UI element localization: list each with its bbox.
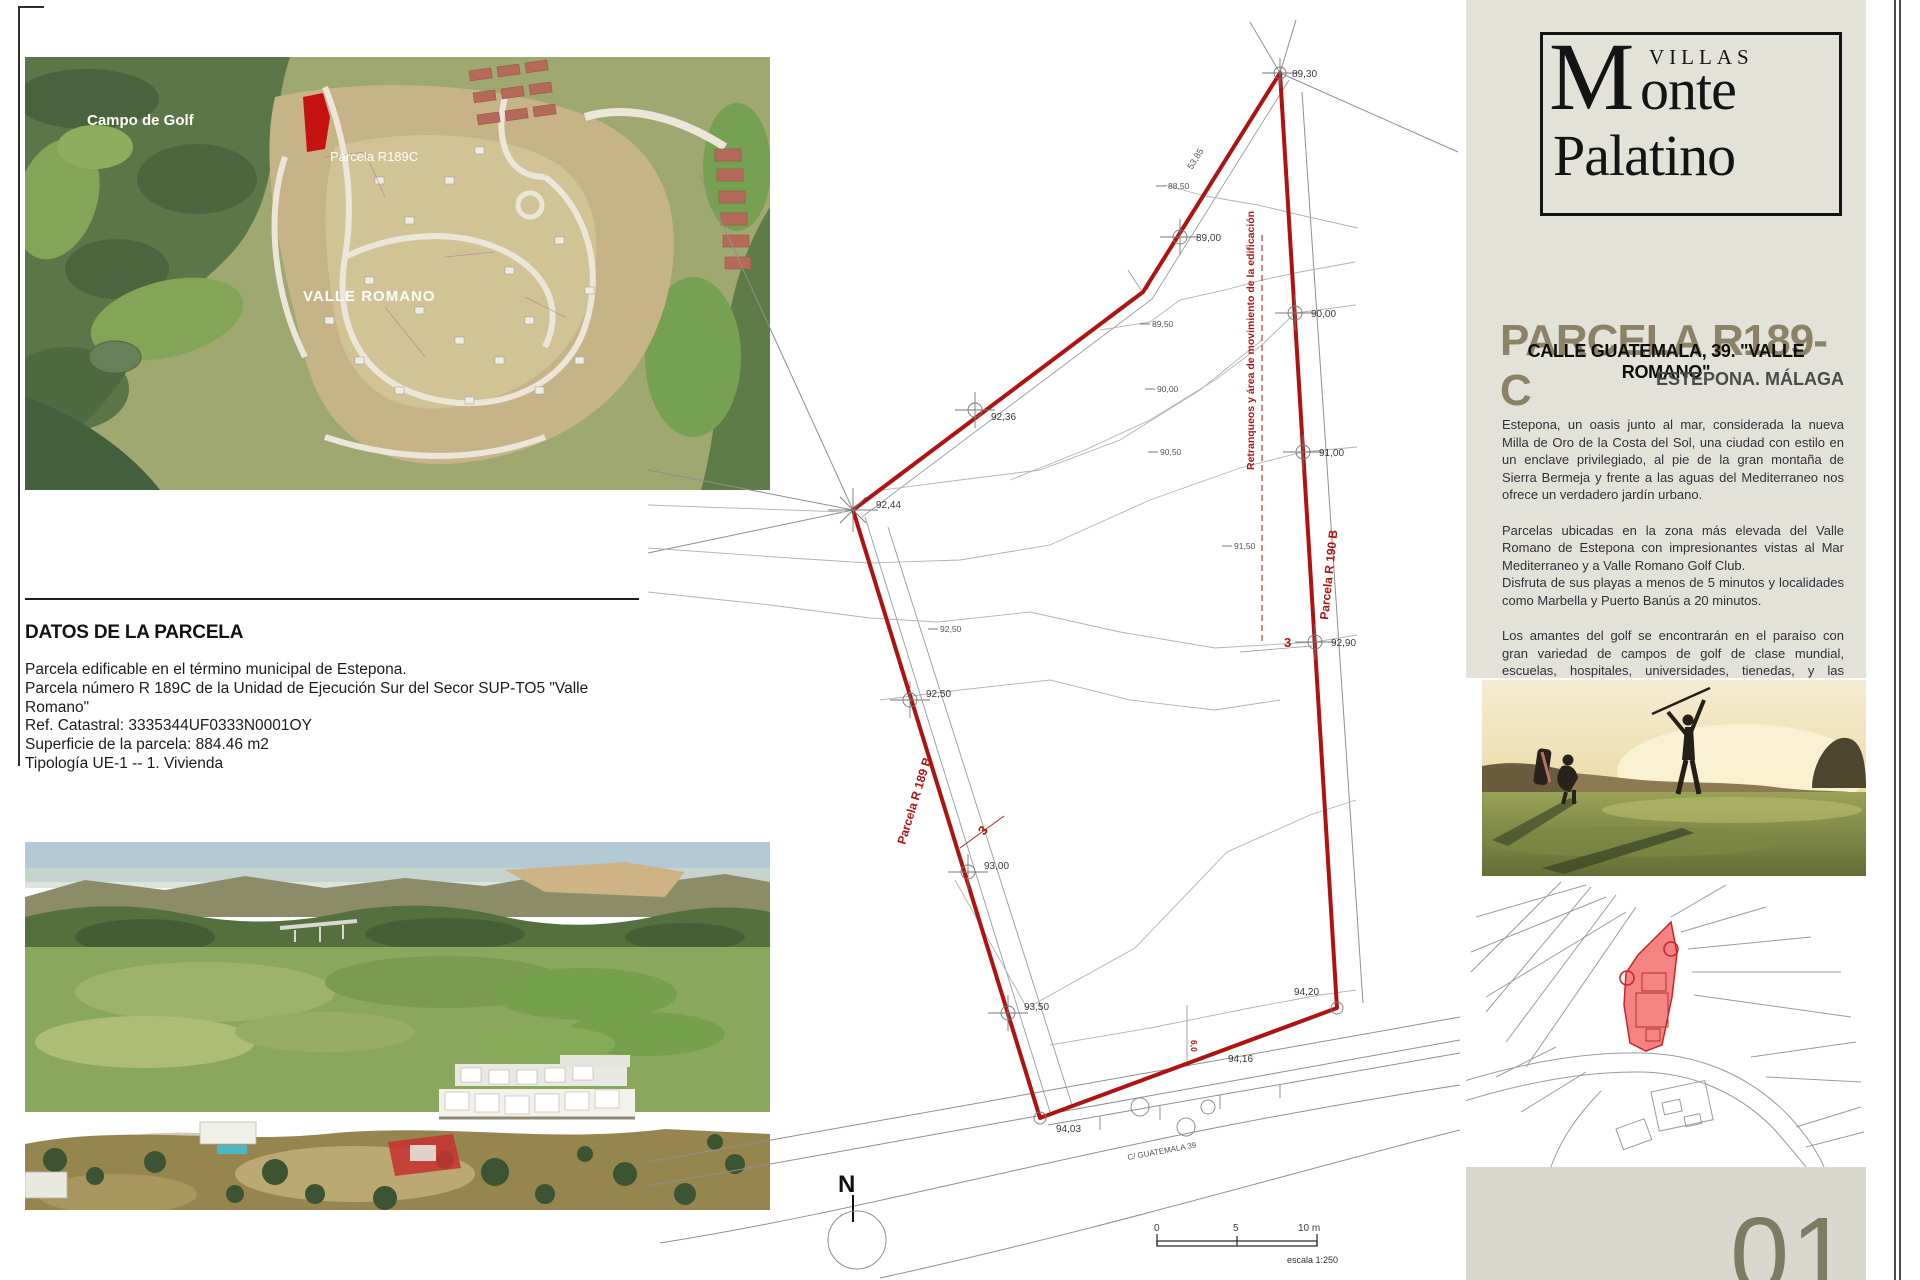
elevation-labels: 89,30 89,00 90,00 91,00 92,90 92,36 92,4… (876, 69, 1356, 1135)
boundary-lines (648, 20, 1460, 1278)
datos-heading: DATOS DE LA PARCELA (25, 622, 243, 644)
right-column: VILLAS M onte Palatino PARCELA R189-C CA… (1466, 0, 1866, 1280)
svg-text:92,44: 92,44 (876, 500, 901, 511)
datos-superficie: Superficie de la parcela: 884.46 m2 (25, 736, 269, 753)
svg-text:0: 0 (1154, 1223, 1160, 1234)
logo-palatino: Palatino (1553, 127, 1735, 185)
datos-ref-catastral: Ref. Catastral: 3335344UF0333N0001OY (25, 717, 312, 734)
north-arrow: N (828, 1171, 886, 1269)
datos-paragraph-1: Parcela edificable en el término municip… (25, 660, 630, 717)
svg-text:5: 5 (1233, 1223, 1239, 1234)
svg-text:90,00: 90,00 (1157, 384, 1179, 394)
description-paragraph-2: Parcelas ubicadas en la zona más elevada… (1502, 522, 1844, 610)
svg-text:90,00: 90,00 (1311, 309, 1336, 320)
brand-logo: VILLAS M onte Palatino (1540, 32, 1842, 216)
svg-text:92,50: 92,50 (940, 624, 962, 634)
elevation-markers (828, 58, 1343, 1124)
label-parcela-r189b: Parcela R 189 B (894, 755, 934, 846)
satellite-label-valle-romano: VALLE ROMANO (303, 288, 436, 305)
description-paragraph-1: Estepona, un oasis junto al mar, conside… (1502, 416, 1844, 504)
label-retranqueos: Retranqueos y área de movimiento de la e… (1245, 211, 1257, 470)
page-border-left (18, 6, 20, 766)
parcel-location: ESTEPONA. MÁLAGA (1486, 369, 1844, 390)
logo-monte: onte (1640, 61, 1736, 119)
scale-text: escala 1:250 (1287, 1255, 1338, 1265)
svg-text:10 m: 10 m (1298, 1223, 1320, 1234)
page-border-right-inner (1899, 0, 1901, 1280)
datos-line1: Parcela edificable en el término municip… (25, 661, 407, 678)
site-plan-drawing: 89,30 89,00 90,00 91,00 92,90 92,36 92,4… (630, 0, 1460, 1280)
svg-text:91,00: 91,00 (1319, 448, 1344, 459)
svg-text:94,16: 94,16 (1228, 1054, 1253, 1065)
svg-text:92,90: 92,90 (1331, 638, 1356, 649)
svg-text:93,00: 93,00 (984, 861, 1009, 872)
parcel-outline (853, 73, 1337, 1118)
scale-bar: 0 5 10 m escala 1:250 (1154, 1223, 1338, 1265)
svg-text:89,00: 89,00 (1196, 233, 1221, 244)
golf-sunset-photo (1482, 680, 1866, 876)
dimension-lines (862, 80, 1289, 1112)
svg-text:93,50: 93,50 (1024, 1002, 1049, 1013)
page-number-block: 01 (1466, 1167, 1866, 1280)
satellite-label-campo-de-golf: Campo de Golf (87, 112, 195, 129)
edge-dimension-label: 53,85 (1185, 147, 1205, 171)
page-border-corner (18, 6, 44, 8)
svg-text:94,03: 94,03 (1056, 1124, 1081, 1135)
svg-text:89,30: 89,30 (1292, 69, 1317, 80)
datos-line2: Parcela número R 189C de la Unidad de Ej… (25, 680, 588, 716)
datos-tipologia: Tipología UE-1 -- 1. Vivienda (25, 755, 223, 772)
setback-road-label: 6,0 (1189, 1040, 1199, 1052)
svg-text:N: N (838, 1171, 855, 1198)
svg-text:92,50: 92,50 (926, 689, 951, 700)
svg-text:90,50: 90,50 (1160, 447, 1182, 457)
minimap-parcel-highlight (1620, 922, 1678, 1051)
datos-divider (25, 598, 639, 600)
page-border-right-outer (1894, 0, 1896, 1280)
svg-text:88,50: 88,50 (1168, 181, 1190, 191)
brochure-page: Campo de Golf Parcela R189C VALLE ROMANO… (0, 0, 1920, 1280)
page-number: 01 (1730, 1195, 1852, 1280)
contour-labels: 88,50 89,50 90,00 90,50 91,50 92,50 (928, 181, 1256, 634)
cadastral-minimap (1466, 877, 1866, 1167)
svg-text:94,20: 94,20 (1294, 987, 1319, 998)
datos-paragraph-2: Ref. Catastral: 3335344UF0333N0001OY Sup… (25, 716, 630, 773)
svg-text:91,50: 91,50 (1234, 541, 1256, 551)
logo-monogram-m: M (1549, 29, 1633, 125)
satellite-label-parcela: Parcela R189C (330, 149, 418, 164)
svg-text:89,50: 89,50 (1152, 319, 1174, 329)
svg-text:92,36: 92,36 (991, 412, 1016, 423)
